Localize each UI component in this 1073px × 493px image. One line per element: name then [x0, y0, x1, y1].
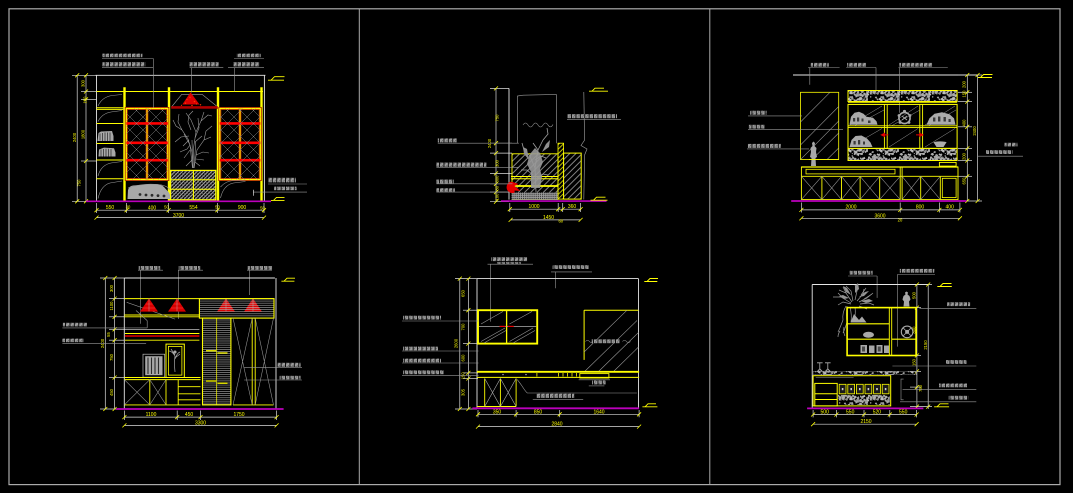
svg-text:1750: 1750: [233, 412, 244, 418]
svg-text:305: 305: [460, 388, 465, 396]
svg-text:520: 520: [873, 410, 882, 416]
svg-text:450: 450: [109, 388, 114, 396]
svg-text:550: 550: [846, 410, 855, 416]
svg-text:650: 650: [962, 177, 967, 185]
svg-text:3300: 3300: [195, 420, 206, 426]
svg-text:750: 750: [918, 384, 923, 392]
svg-text:2600: 2600: [453, 338, 458, 348]
svg-text:300: 300: [495, 159, 500, 167]
svg-text:50: 50: [260, 206, 265, 211]
svg-text:1450: 1450: [543, 215, 554, 221]
svg-text:300: 300: [81, 79, 86, 87]
svg-text:50: 50: [215, 204, 220, 209]
svg-text:800: 800: [916, 205, 925, 211]
svg-text:1640: 1640: [593, 409, 604, 415]
svg-text:3600: 3600: [874, 213, 885, 219]
svg-text:1000: 1000: [528, 204, 539, 210]
svg-text:300: 300: [109, 284, 114, 292]
svg-text:1800: 1800: [81, 129, 86, 139]
svg-text:550: 550: [106, 205, 115, 211]
svg-text:55: 55: [106, 332, 111, 337]
svg-text:80: 80: [495, 185, 500, 190]
svg-text:400: 400: [148, 206, 157, 212]
svg-text:150: 150: [83, 96, 88, 104]
svg-text:200: 200: [962, 152, 967, 160]
svg-text:2000: 2000: [845, 205, 856, 211]
svg-text:700: 700: [460, 323, 465, 331]
svg-text:2150: 2150: [860, 419, 871, 425]
svg-text:2150: 2150: [923, 340, 928, 350]
svg-text:300: 300: [495, 175, 500, 183]
svg-text:900: 900: [238, 205, 247, 211]
svg-text:750: 750: [77, 179, 82, 187]
svg-text:360: 360: [568, 204, 577, 210]
svg-text:500: 500: [821, 410, 830, 416]
svg-text:750: 750: [495, 114, 500, 122]
svg-text:400: 400: [946, 205, 955, 211]
svg-text:2400: 2400: [72, 132, 77, 142]
svg-text:2840: 2840: [551, 422, 562, 428]
svg-text:650: 650: [460, 289, 465, 297]
svg-text:850: 850: [534, 409, 543, 415]
svg-text:20: 20: [898, 218, 903, 223]
svg-text:60: 60: [558, 218, 563, 223]
svg-text:1100: 1100: [146, 412, 157, 418]
svg-text:554: 554: [189, 205, 198, 211]
svg-text:50: 50: [164, 204, 169, 209]
svg-text:150: 150: [962, 90, 967, 98]
svg-text:2400: 2400: [972, 126, 977, 136]
svg-text:200: 200: [962, 80, 967, 88]
svg-text:400: 400: [962, 119, 967, 127]
svg-text:750: 750: [109, 353, 114, 361]
svg-text:550: 550: [899, 410, 908, 416]
svg-text:150: 150: [911, 358, 916, 366]
svg-text:600: 600: [460, 354, 465, 362]
svg-text:3700: 3700: [173, 213, 184, 219]
svg-text:30: 30: [126, 204, 131, 209]
svg-text:450: 450: [185, 412, 194, 418]
svg-text:350: 350: [493, 409, 502, 415]
svg-text:100: 100: [495, 193, 500, 201]
svg-text:1100: 1100: [109, 301, 114, 311]
svg-text:500: 500: [911, 291, 916, 299]
